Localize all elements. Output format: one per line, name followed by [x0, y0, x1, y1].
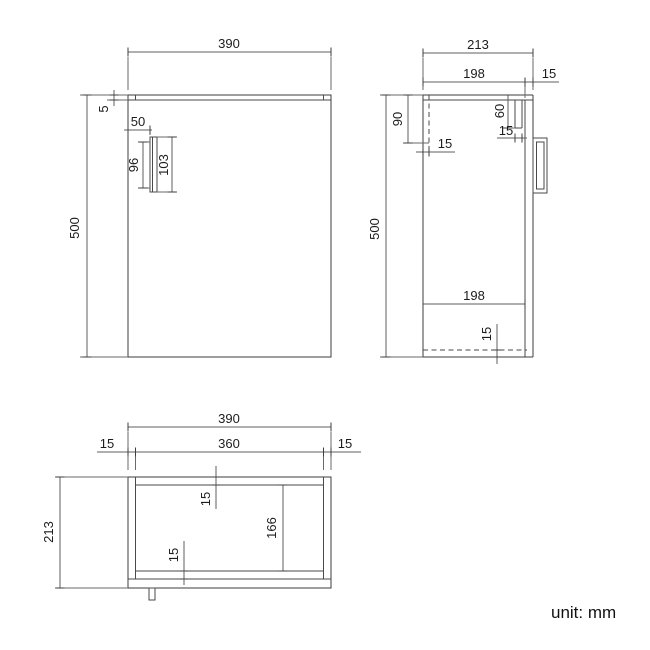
front-handle-height-label: 103 — [156, 154, 171, 176]
plan-inner-width-label: 360 — [218, 436, 240, 451]
side-view-dimensions: 213 198 15 90 15 60 — [367, 37, 559, 364]
front-view: 390 5 500 50 96 — [67, 36, 331, 357]
side-bottom-panel-length-label: 198 — [463, 288, 485, 303]
side-view-outline — [423, 95, 547, 357]
side-carcass-depth-label: 198 — [463, 66, 485, 81]
plan-inner-depth-label: 166 — [264, 517, 279, 539]
side-bottom-panel-thickness-label: 15 — [479, 327, 494, 341]
side-depth-label: 213 — [467, 37, 489, 52]
front-view-outline — [128, 95, 331, 357]
front-height-label: 500 — [67, 217, 82, 239]
side-view: 213 198 15 90 15 60 — [367, 37, 559, 364]
plan-view-dimensions: 390 360 15 15 213 15 — [41, 411, 361, 588]
plan-front-rail-label: 15 — [166, 548, 181, 562]
cabinet-dimension-drawing: 390 5 500 50 96 — [0, 0, 650, 650]
plan-right-panel-label: 15 — [338, 436, 352, 451]
plan-view: 390 360 15 15 213 15 — [41, 411, 361, 600]
front-width-label: 390 — [218, 36, 240, 51]
plan-depth-label: 213 — [41, 521, 56, 543]
plan-view-outline — [128, 477, 331, 600]
front-top-thickness-label: 5 — [96, 105, 111, 112]
technical-drawing-canvas: 390 5 500 50 96 — [0, 0, 650, 650]
side-rail-thickness-label: 15 — [499, 123, 513, 138]
unit-label: unit: mm — [551, 603, 616, 622]
side-back-inset-label: 90 — [390, 112, 405, 126]
side-view-top-rail — [515, 100, 522, 128]
plan-left-panel-label: 15 — [100, 436, 114, 451]
front-handle-inner-label: 96 — [126, 158, 141, 172]
plan-width-label: 390 — [218, 411, 240, 426]
front-view-dimensions: 390 5 500 50 96 — [67, 36, 331, 357]
side-rail-height-label: 60 — [492, 104, 507, 118]
side-back-panel-thickness-label: 15 — [438, 136, 452, 151]
side-view-handle-profile — [533, 138, 547, 193]
plan-handle-tab — [149, 588, 155, 600]
side-door-thickness-label: 15 — [542, 66, 556, 81]
side-height-label: 500 — [367, 218, 382, 240]
front-handle-offset-label: 50 — [131, 114, 145, 129]
plan-back-panel-label: 15 — [198, 492, 213, 506]
